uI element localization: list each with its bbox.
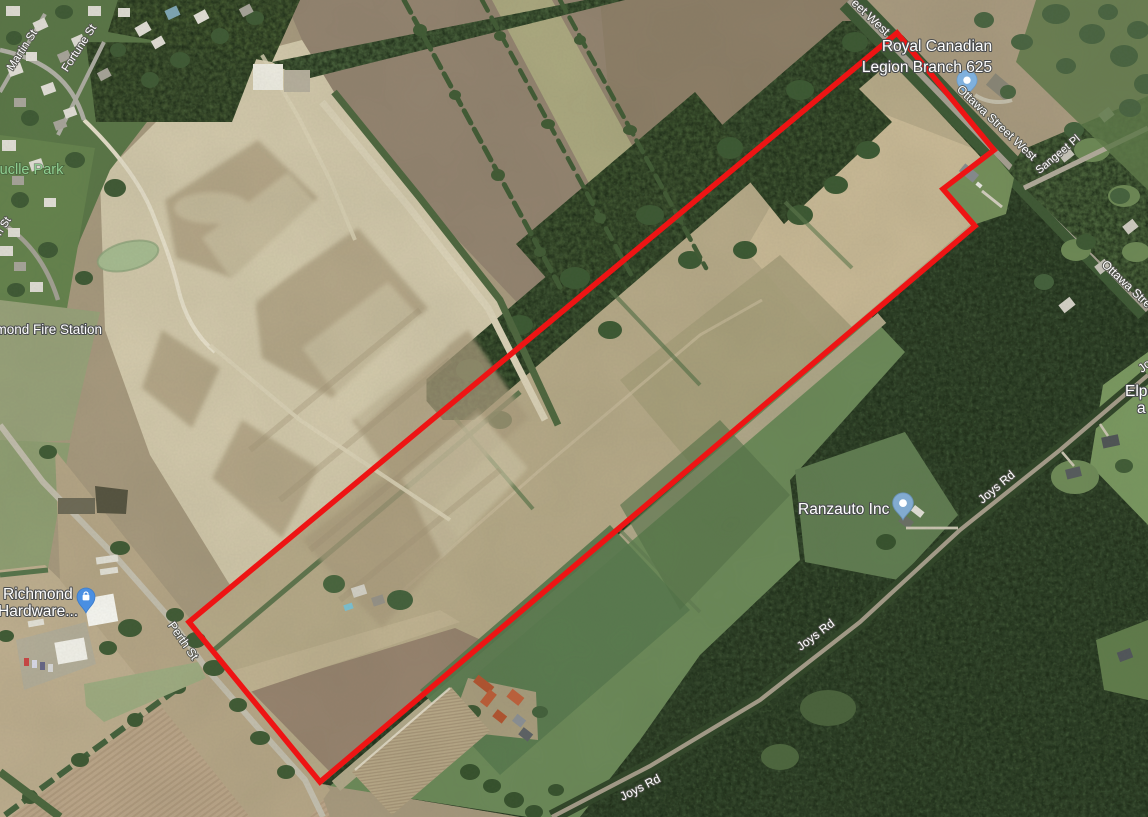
svg-text:hmond Fire Station: hmond Fire Station bbox=[0, 322, 102, 337]
svg-text:Ranzauto Inc: Ranzauto Inc bbox=[798, 501, 890, 518]
svg-text:Buclle Park: Buclle Park bbox=[0, 162, 64, 178]
svg-text:Legion Branch 625: Legion Branch 625 bbox=[862, 59, 992, 76]
svg-text:Hardware...: Hardware... bbox=[0, 603, 78, 620]
svg-text:Elpe: Elpe bbox=[1125, 383, 1148, 400]
svg-text:a: a bbox=[1137, 400, 1146, 417]
svg-text:Richmond: Richmond bbox=[3, 586, 73, 603]
svg-text:Royal Canadian: Royal Canadian bbox=[882, 38, 992, 55]
